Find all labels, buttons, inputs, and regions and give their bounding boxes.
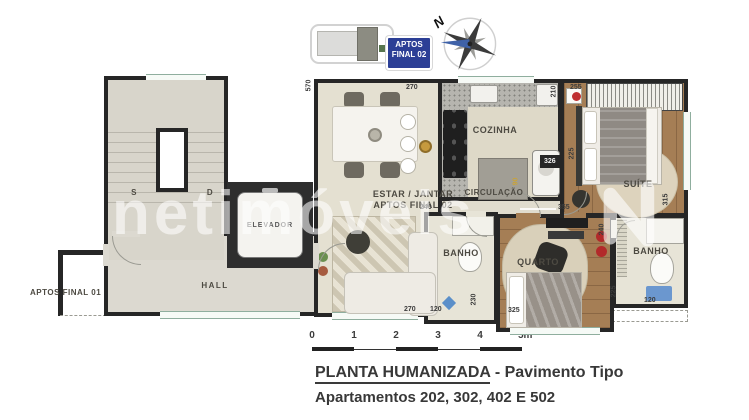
netimoveis-logo-icon [598,180,664,246]
stair-landing-top [108,80,224,126]
double-bed-blanket [600,108,646,184]
scale-tick-label: 4 [468,330,492,341]
plan-title: PLANTA HUMANIZADA - Pavimento Tipo [315,364,735,382]
badge-line-1: APTOS [388,40,430,50]
scale-bar-segment [312,347,354,351]
dining-chair [344,162,364,178]
dim-label: 90 [512,178,519,186]
dim-label: 240 [420,204,432,211]
dim-label: 570 [305,80,312,92]
dim-label: 120 [644,297,656,304]
hall-apt01-door-gap [103,244,109,266]
stair-down-label: D [200,188,220,197]
sofa [344,272,436,314]
key-plan-unit-dark [357,27,378,61]
double-bed-runner [646,108,658,184]
desk-tv [546,218,588,228]
dim-label: 270 [404,306,416,313]
banho1-label: BANHO [432,248,490,258]
neighbor-wall-stub-v [58,250,63,316]
stair-void [156,128,188,192]
neighbor-wall-stub-h [58,250,106,255]
elevator-label: ELEVADOR [247,222,293,229]
dim-label: 120 [430,306,442,313]
elevator-cab: ELEVADOR [237,192,303,258]
decor-circle [400,114,416,130]
dim-label: 225 [610,286,617,298]
gold-flower-decor [419,140,432,153]
double-bed-pillow [584,111,597,144]
title-block: PLANTA HUMANIZADA - Pavimento Tipo Apart… [315,364,735,406]
balcony-dashed-edge [612,310,688,322]
stove [443,110,467,178]
plan-title-heading: PLANTA HUMANIZADA [315,364,490,384]
desk [548,231,584,239]
dim-label: 210 [550,86,557,98]
single-bed-pillow [509,276,524,324]
decor-circle [400,158,416,174]
plant-pot [346,230,370,254]
circulacao-label: CIRCULAÇÃO [438,188,550,197]
bathroom2-toilet [650,252,674,284]
kitchen-sink [470,85,498,103]
scale-tick-label: 3 [426,330,450,341]
key-plan-green-dot [379,45,386,52]
aptos-final-01-label: APTOS FINAL 01 [30,288,130,297]
neighbor-dashed-line [60,315,106,316]
aptos-final-02-badge: APTOS FINAL 02 [386,36,432,70]
scale-tick-label: 1 [342,330,366,341]
dim-label: 355 [558,204,570,211]
double-bed-pillow [584,148,597,181]
stair-up-label: S [124,188,144,197]
quarto-label: QUARTO [506,257,570,267]
cozinha-label: COZINHA [455,125,535,135]
decor-circle [400,136,416,152]
dim-label: 325 [508,307,520,314]
plan-title-suffix: - Pavimento Tipo [490,364,623,381]
compass-north-label: N [430,13,447,31]
scale-tick-label: 0 [300,330,324,341]
suite-window [683,112,691,190]
elevator-door-notch [262,188,278,193]
dim-leader-line [520,208,556,210]
dim-label: 230 [470,294,477,306]
floor-plan-page: APTOS FINAL 02 N S D [0,0,749,420]
dim-label: 225 [568,148,575,160]
scale-tick-label: 2 [384,330,408,341]
red-decor-dot [596,246,607,257]
estar-label-line2: APTOS FINAL 02 [343,200,483,210]
hall-window [160,311,300,319]
badge-line-2: FINAL 02 [388,50,430,60]
dining-centerpiece [368,128,382,142]
banho2-label: BANHO [622,246,680,256]
red-decor-dot [572,92,581,101]
dim-label: 326 [544,158,556,165]
dim-label: 270 [406,84,418,91]
scale-bar-segment [396,347,438,351]
quarto-window [510,327,600,335]
scale-bar-segment [480,347,522,351]
dining-chair [380,162,400,178]
plan-subtitle: Apartamentos 202, 302, 402 E 502 [315,389,735,406]
single-bed-blanket [526,273,581,327]
dim-label: 255 [570,84,582,91]
compass-rose-icon: N [430,4,506,80]
hall-label: HALL [180,281,250,290]
